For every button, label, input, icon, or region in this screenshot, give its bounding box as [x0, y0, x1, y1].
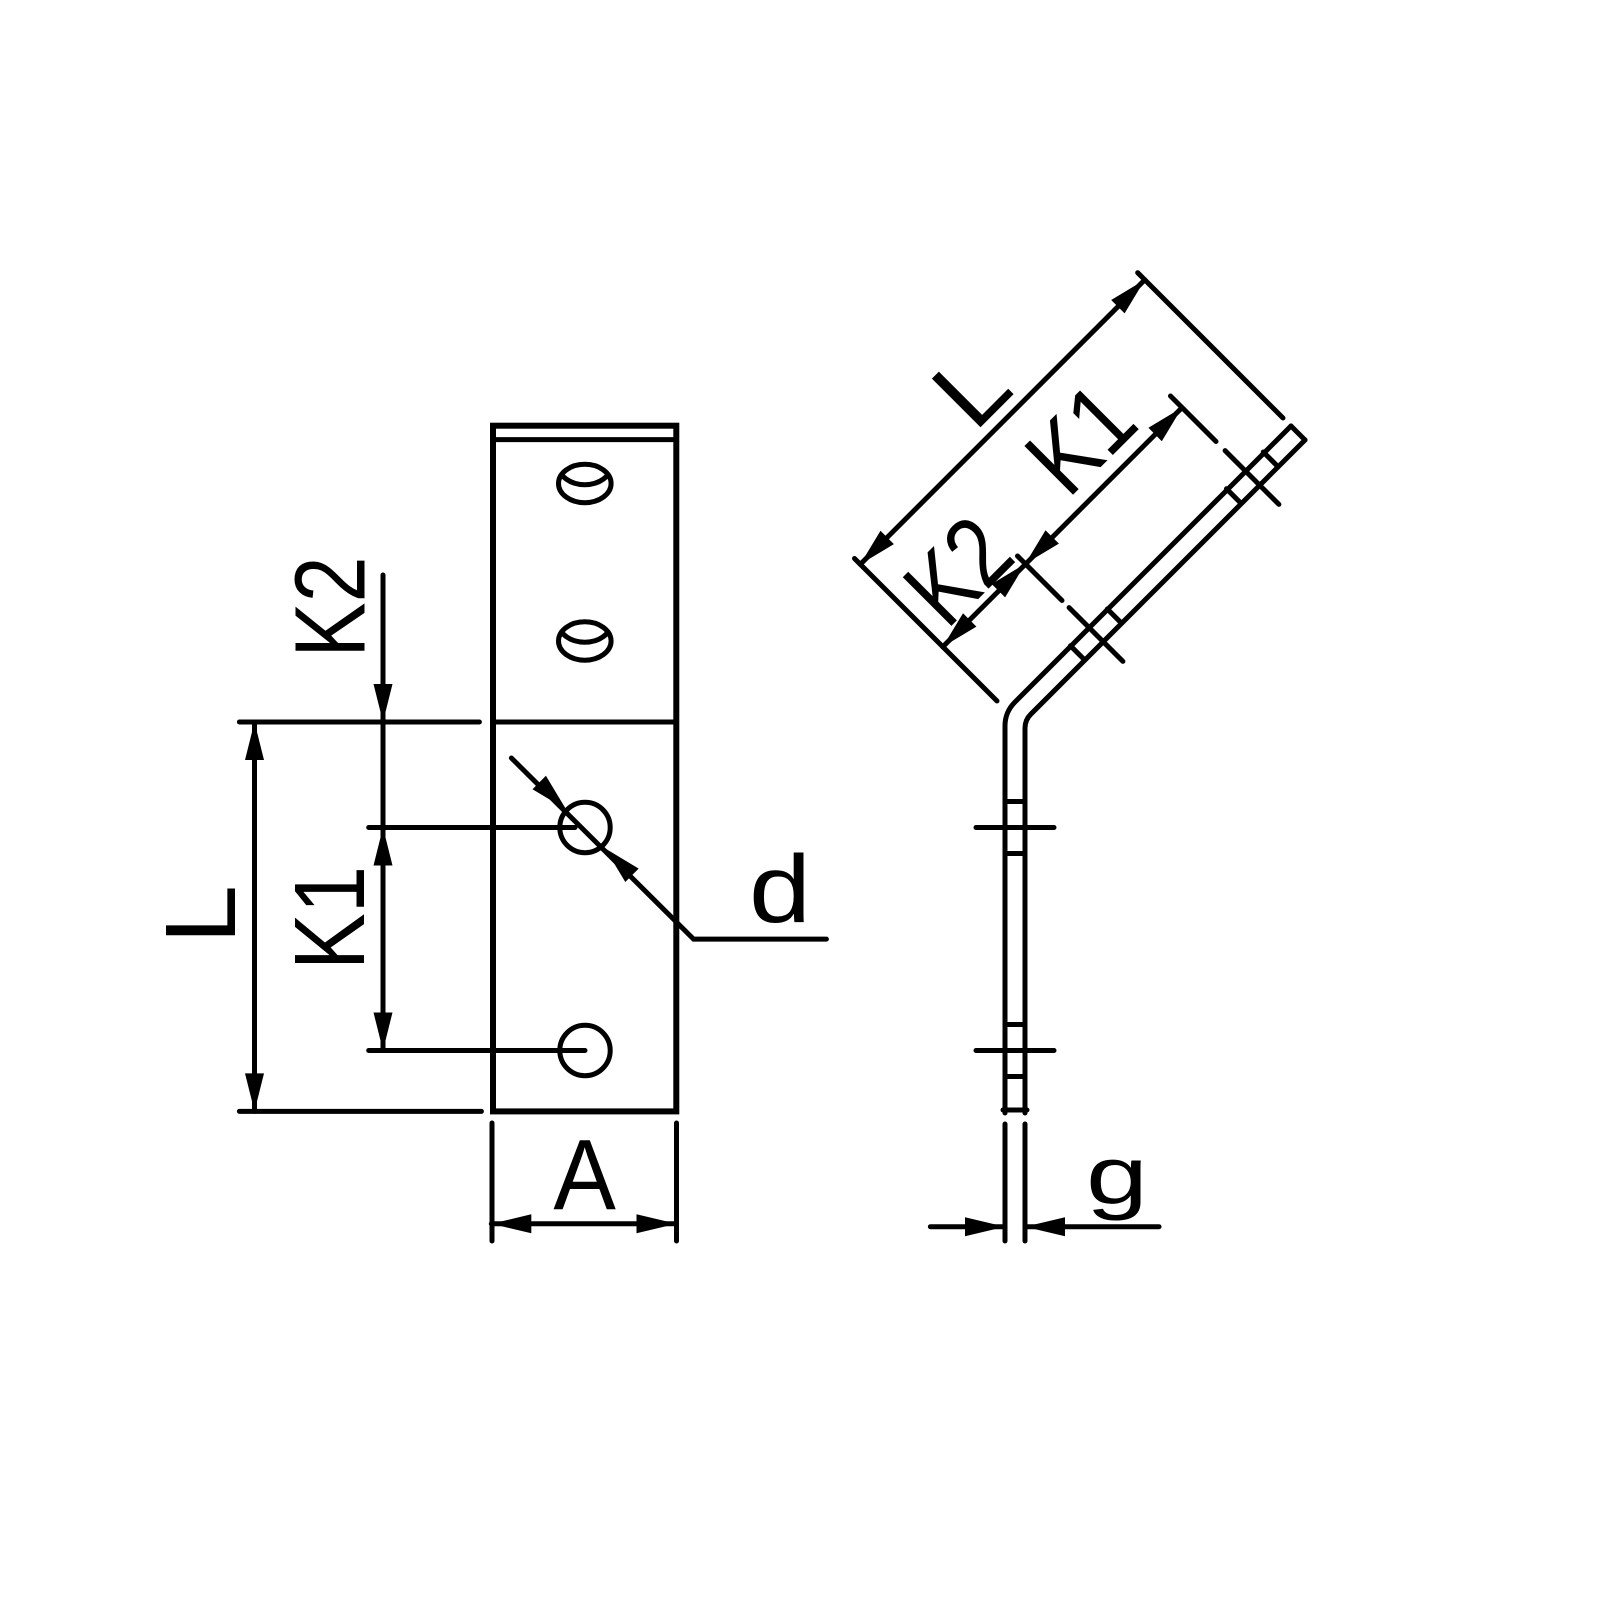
svg-text:A: A — [553, 1119, 616, 1231]
svg-text:g: g — [1086, 1130, 1148, 1221]
svg-text:K1: K1 — [1004, 362, 1157, 515]
svg-text:L: L — [145, 885, 257, 944]
svg-text:d: d — [749, 836, 811, 943]
svg-text:K1: K1 — [274, 866, 386, 970]
svg-text:K2: K2 — [275, 557, 387, 658]
